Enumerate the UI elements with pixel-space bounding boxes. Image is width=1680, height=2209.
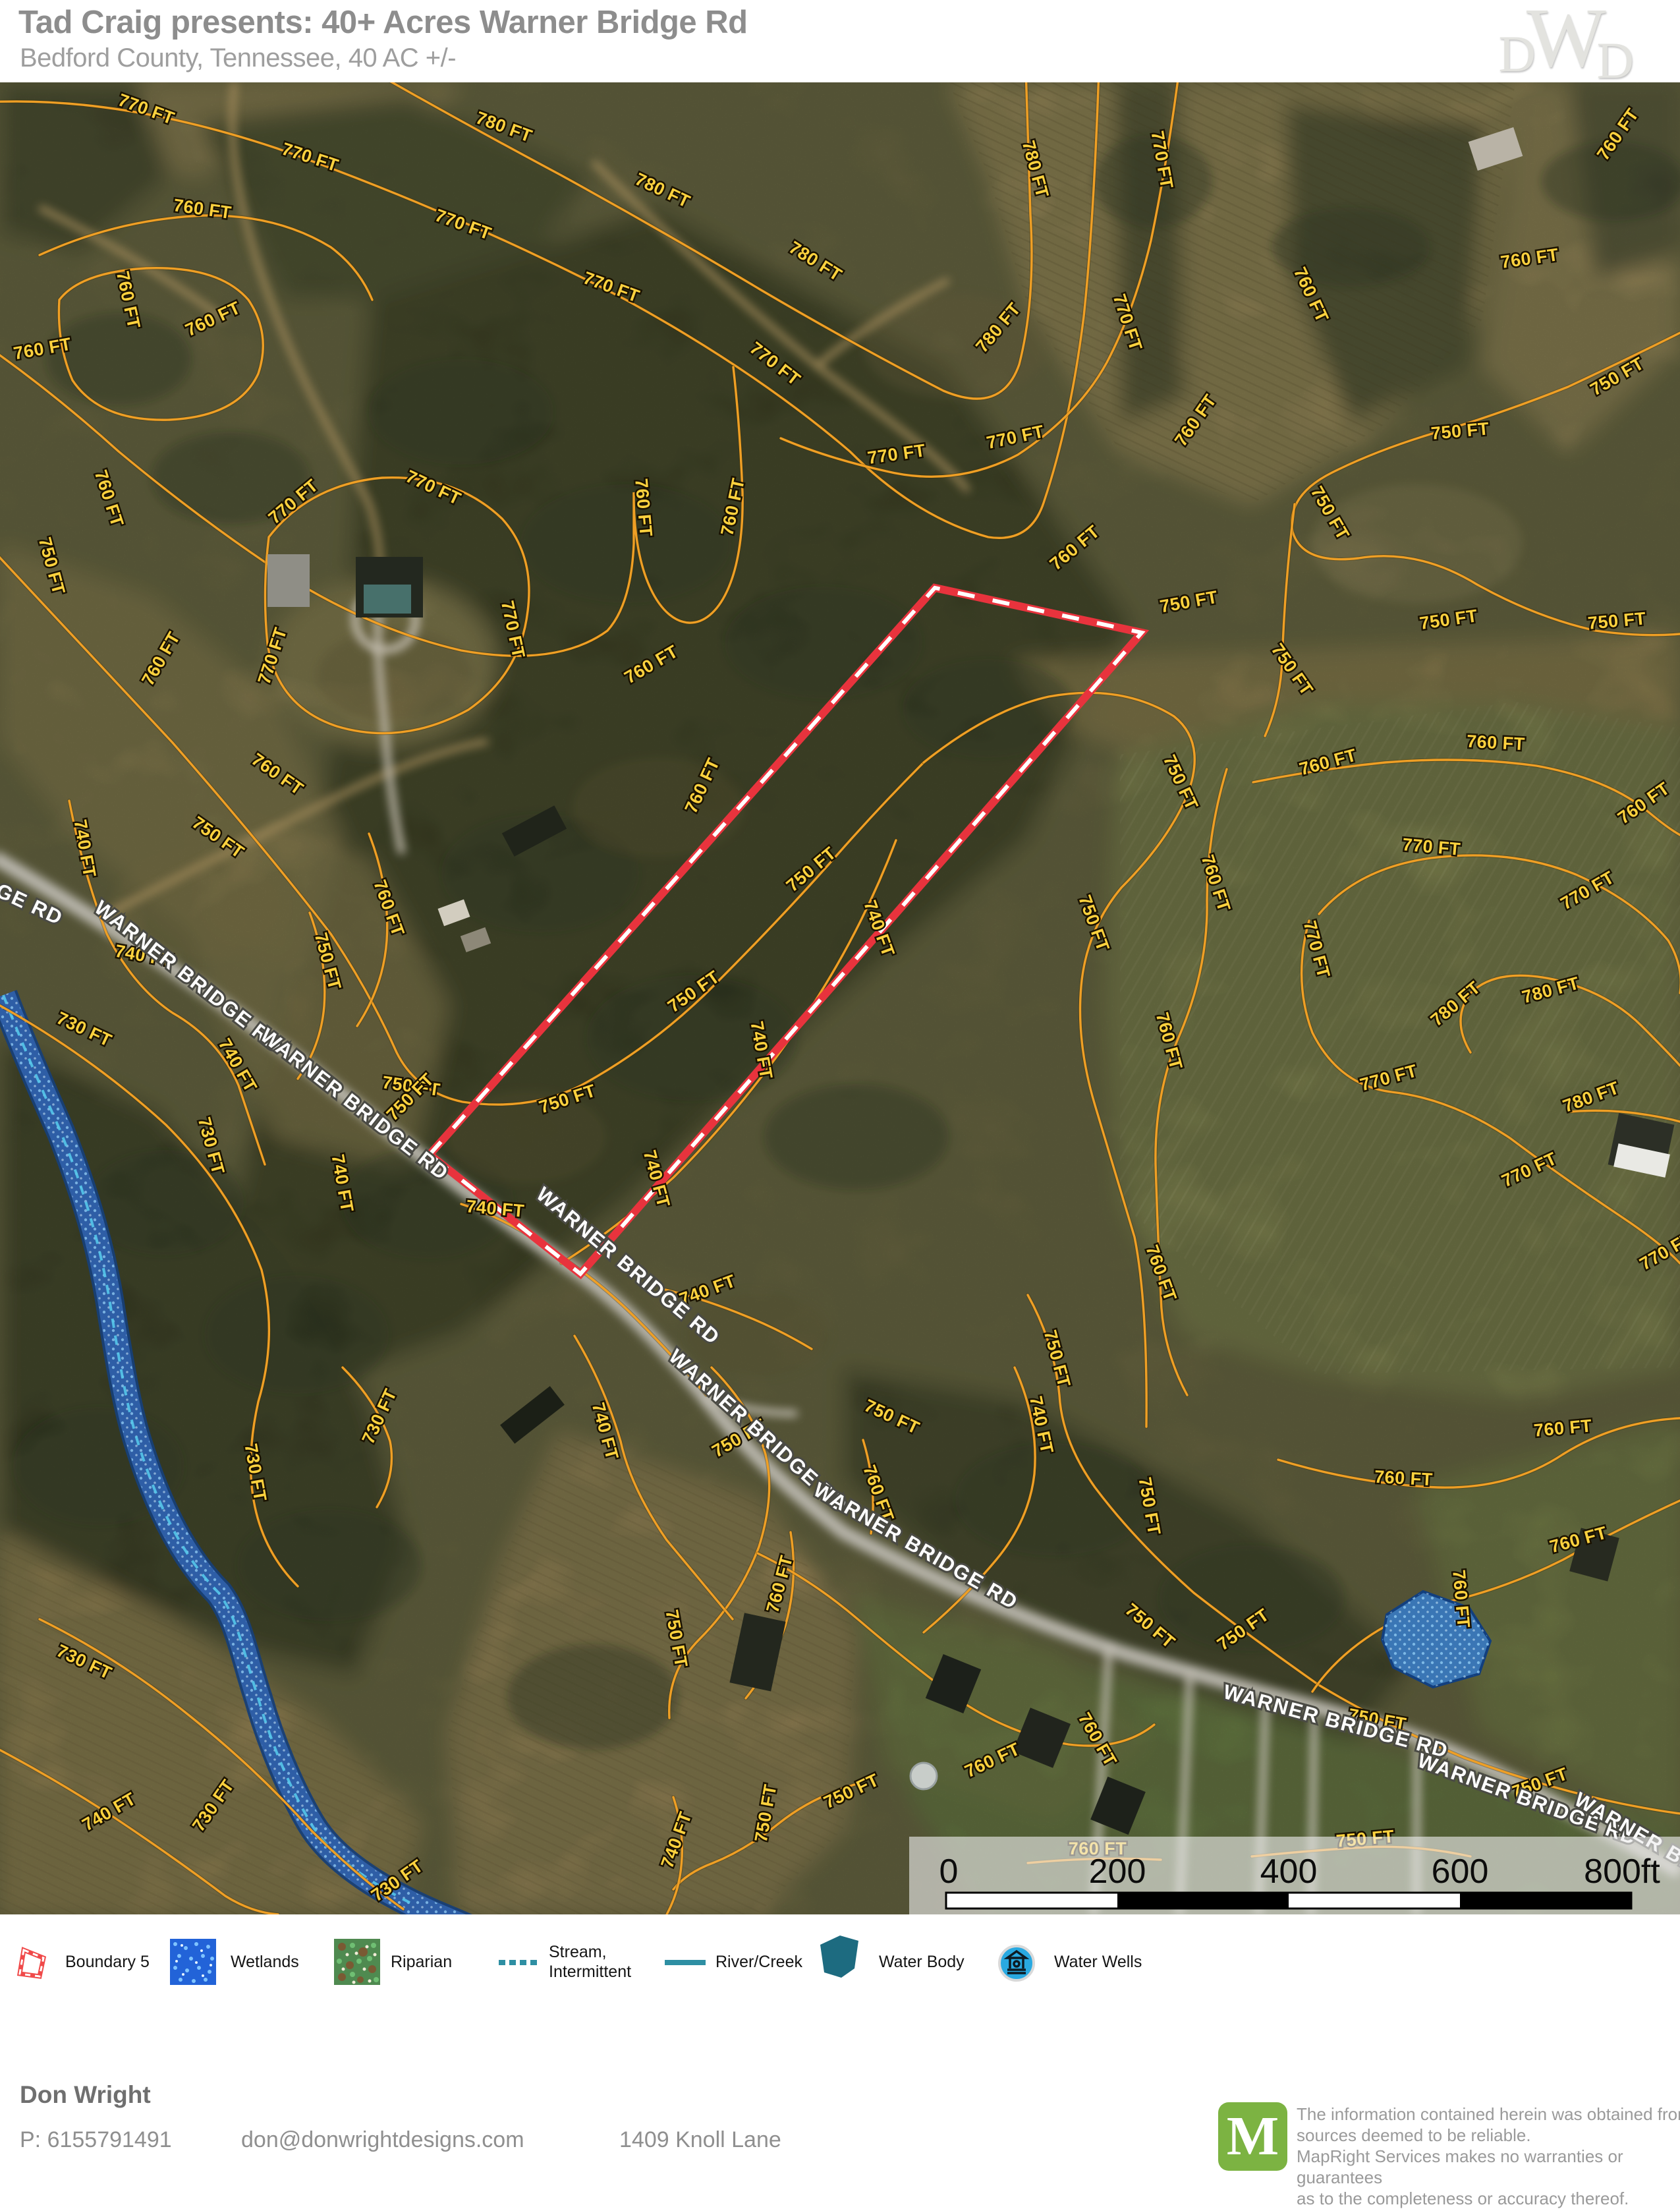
disclaimer-line: The information contained herein was obt… (1297, 2104, 1680, 2125)
scale-bar-label: 0 (939, 1852, 959, 1891)
scale-bar-label: 200 (1089, 1852, 1146, 1891)
map-legend: Boundary 5WetlandsRiparianStream, Interm… (0, 1914, 1680, 2030)
dwd-logo-letter: W (1526, 0, 1606, 84)
page-subtitle: Bedford County, Tennessee, 40 AC +/- (20, 43, 456, 73)
disclaimer-line: MapRight Services makes no warranties or… (1297, 2146, 1680, 2188)
pool (910, 1763, 937, 1789)
header: Tad Craig presents: 40+ Acres Warner Bri… (0, 0, 1680, 82)
mapright-logo: M (1218, 2102, 1287, 2171)
scale-bar-label: 400 (1260, 1852, 1318, 1891)
wells-icon (997, 1943, 1036, 1986)
contour-elevation-label: 760 FT (1466, 732, 1525, 755)
dwd-logo-letter: D (1597, 32, 1634, 89)
legend-item-label: Boundary 5 (65, 1952, 150, 1972)
contour-elevation-label: 760 FT (1374, 1467, 1433, 1490)
scale-bar: 0200400600800ft (909, 1837, 1680, 1914)
map-canvas: 770 FT780 FT770 FT780 FT760 FT770 FT780 … (0, 82, 1680, 1914)
legend-item-label: Water Wells (1054, 1952, 1142, 1972)
agent-address: 1409 Knoll Lane (619, 2127, 781, 2153)
building (364, 585, 411, 614)
agent-name: Don Wright (20, 2081, 151, 2109)
waterbody-icon (818, 1934, 873, 1990)
agent-email: don@donwrightdesigns.com (241, 2127, 524, 2153)
legend-item-label: Wetlands (231, 1952, 299, 1972)
stream-icon (497, 1949, 541, 1979)
wetlands-icon (170, 1939, 216, 1988)
disclaimer-line: as to the completeness or accuracy there… (1297, 2188, 1680, 2209)
agent-phone: P: 6155791491 (20, 2127, 172, 2153)
legend-item-label: Riparian (391, 1952, 452, 1972)
building (267, 554, 310, 607)
scale-bar-label: 800ft (1584, 1852, 1660, 1891)
legend-item-label: Water Body (879, 1952, 965, 1972)
disclaimer-line: sources deemed to be reliable. (1297, 2125, 1680, 2146)
page-title: Tad Craig presents: 40+ Acres Warner Bri… (18, 4, 748, 41)
river-icon (663, 1949, 707, 1979)
legend-item-label: River/Creek (715, 1952, 802, 1972)
riparian-icon (334, 1939, 380, 1988)
boundary-icon (12, 1945, 49, 1985)
aerial-map: 770 FT780 FT770 FT780 FT760 FT770 FT780 … (0, 82, 1680, 1914)
scale-bar-label: 600 (1432, 1852, 1489, 1891)
legend-item-label: Stream, Intermittent (549, 1942, 631, 1982)
disclaimer-text: The information contained herein was obt… (1297, 2104, 1680, 2209)
